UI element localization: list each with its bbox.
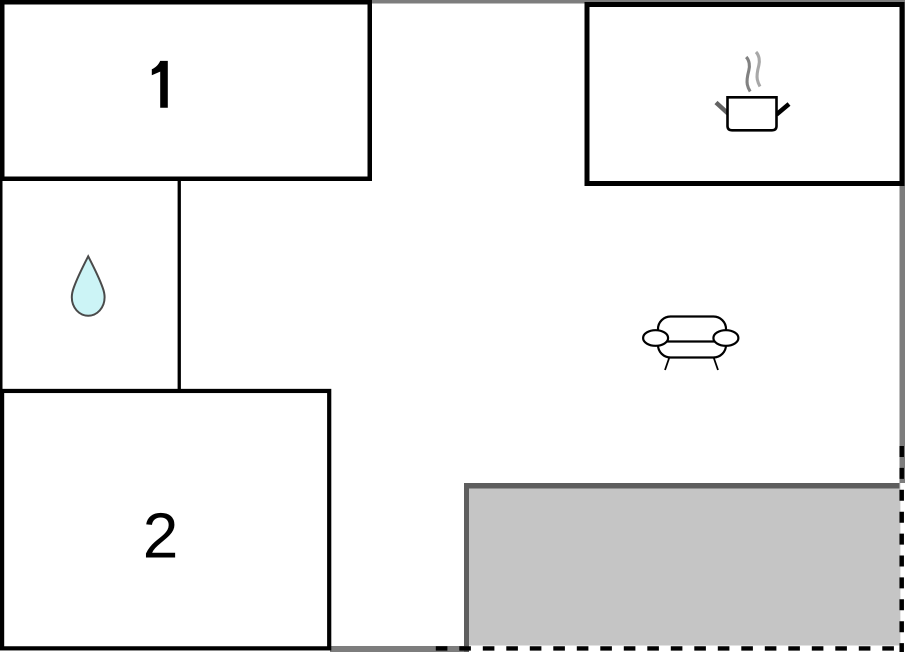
svg-text:2: 2 [143,500,179,572]
